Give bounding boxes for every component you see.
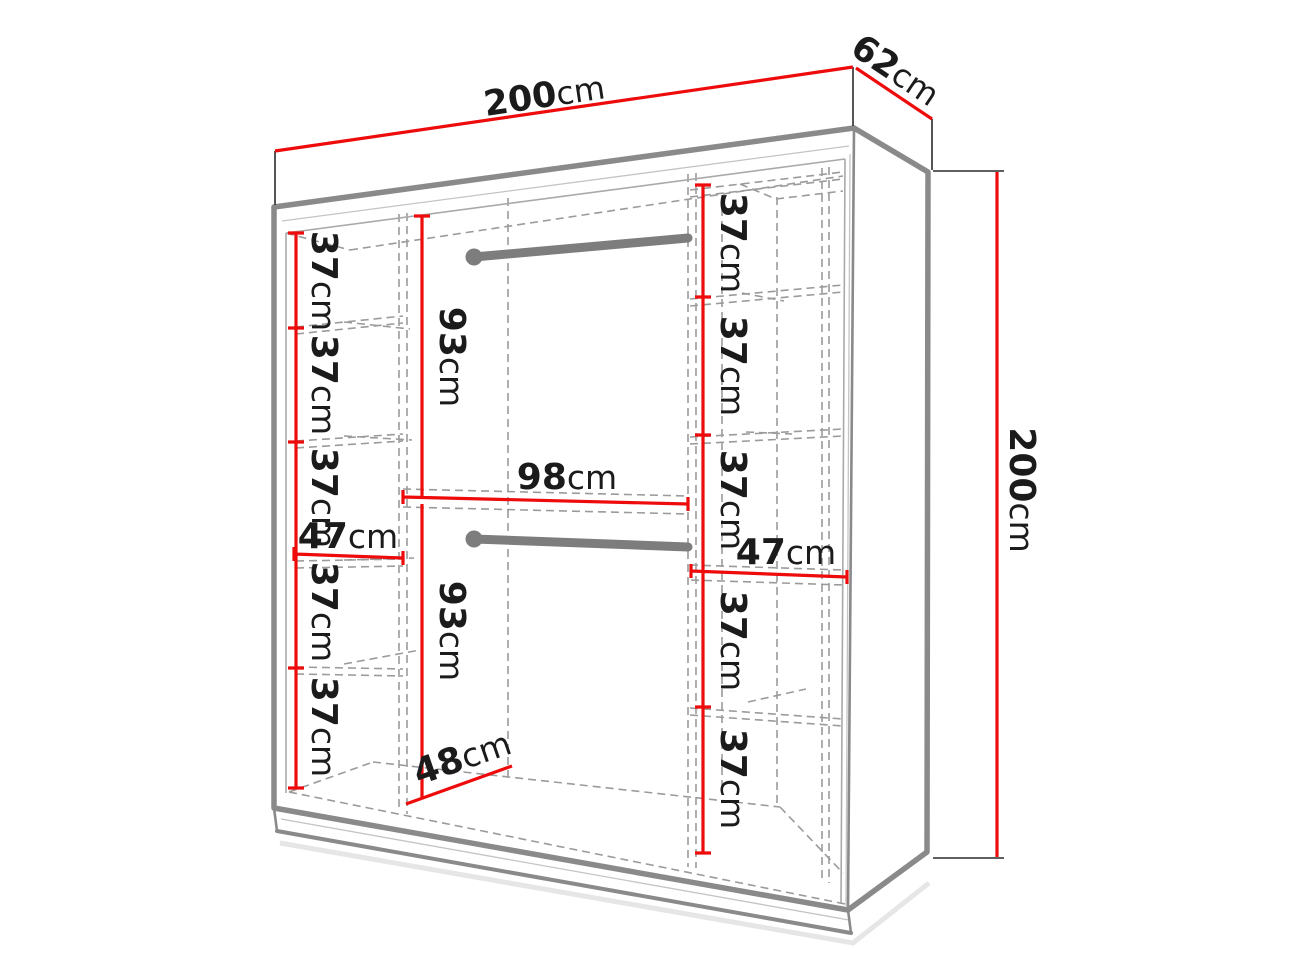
label-center-lower-height: 93cm [431,581,472,681]
label-right-shelf-4: 37cm [712,591,753,691]
label-overall-height: 200cm [1001,427,1042,552]
wardrobe-diagram-stage: 200cm 62cm 200cm 37cm 37cm 37cm 47cm 37c… [0,0,1303,977]
label-center-upper-height: 93cm [431,307,472,407]
wardrobe-dimension-diagram: 200cm 62cm 200cm 37cm 37cm 37cm 47cm 37c… [0,0,1303,977]
hanging-rod-top-cap [466,249,483,266]
label-left-shelf-1: 37cm [303,231,344,331]
label-right-column-width: 47cm [736,532,836,573]
label-right-shelf-1: 37cm [712,193,753,293]
label-left-column-width: 47cm [298,516,398,557]
label-left-shelf-5: 37cm [303,677,344,777]
hanging-rod-bottom-cap [466,531,483,548]
label-right-shelf-2: 37cm [712,316,753,416]
label-right-shelf-5: 37cm [712,729,753,829]
label-left-shelf-2: 37cm [303,335,344,435]
label-left-shelf-4: 37cm [303,562,344,662]
label-center-width: 98cm [517,457,617,498]
background [0,0,1303,977]
